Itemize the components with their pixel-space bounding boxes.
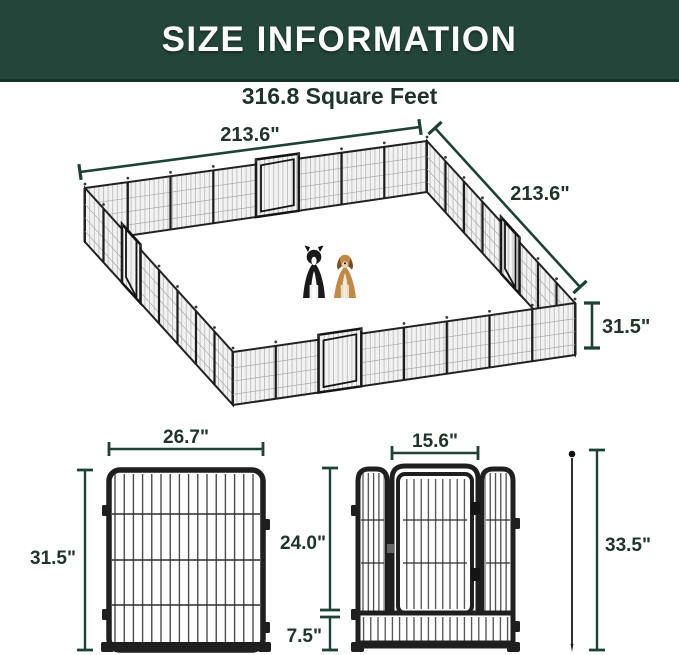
- door-hinge-top: [471, 502, 480, 515]
- pen-dimension-height: 31.5": [584, 303, 650, 348]
- dog-icon-beagle: [334, 255, 356, 298]
- pen-wall-back-left: [85, 137, 427, 242]
- door-dimension-height: 24.0": [280, 468, 340, 617]
- door-hinge-bottom: [471, 568, 480, 581]
- pen-depth-label: 213.6": [510, 183, 570, 205]
- panel-dimension-height: 31.5": [30, 470, 93, 650]
- stake-height-label: 33.5": [605, 535, 651, 556]
- size-information-page: 213.6" 213.6" 31.5" 26.7" 31.5": [0, 0, 679, 655]
- pen-width-label: 213.6": [220, 124, 280, 146]
- door-latch: [387, 544, 394, 553]
- header-banner: SIZE INFORMATION: [0, 0, 679, 82]
- door-height-label: 24.0": [280, 533, 326, 554]
- square-feet-subtitle: 316.8 Square Feet: [0, 83, 679, 110]
- pen-door-back-right: [501, 217, 520, 294]
- door-dimension-width: 15.6": [392, 431, 478, 460]
- panel-height-label: 31.5": [30, 548, 76, 569]
- ground-stake-icon: [569, 451, 576, 652]
- pen-illustration: 213.6" 213.6" 31.5": [79, 119, 651, 405]
- pen-door-front-right: [319, 329, 362, 393]
- pen-wall-front-right: [233, 303, 575, 405]
- bottom-dimension-height: 7.5": [287, 617, 338, 650]
- bottom-height-label: 7.5": [287, 626, 322, 647]
- page-title: SIZE INFORMATION: [162, 20, 518, 60]
- pen-door-back-left: [256, 154, 299, 217]
- door-width-label: 15.6": [412, 431, 458, 452]
- pen-door-front-left: [122, 224, 141, 303]
- panel-front-diagram: 26.7" 31.5": [30, 427, 271, 652]
- door-panel-diagram: 15.6" 24.0" 7.5": [280, 431, 651, 652]
- dog-icon-border-collie: [303, 246, 325, 299]
- panel-width-label: 26.7": [163, 427, 209, 448]
- panel-dimension-width: 26.7": [109, 427, 263, 456]
- stake-dimension-height: 33.5": [589, 450, 651, 650]
- pen-height-label: 31.5": [602, 316, 650, 338]
